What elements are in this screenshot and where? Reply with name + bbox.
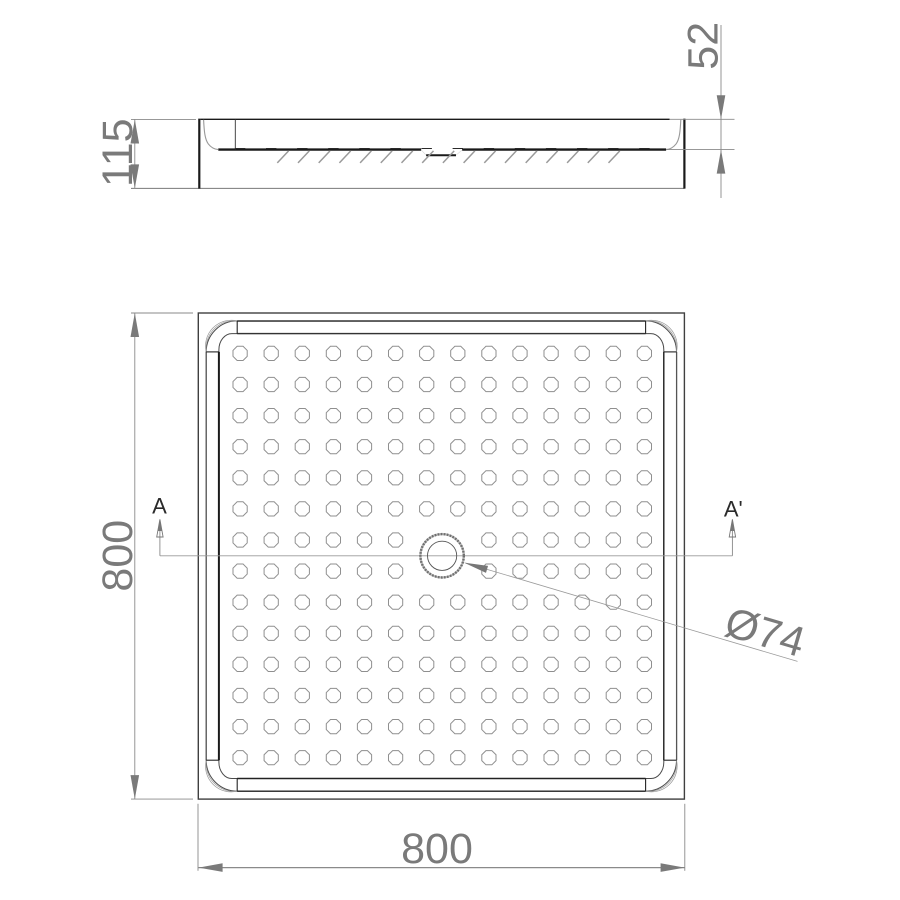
svg-text:800: 800	[401, 825, 473, 873]
svg-text:A': A'	[724, 497, 743, 522]
svg-text:115: 115	[94, 118, 142, 187]
svg-text:52: 52	[679, 22, 727, 70]
svg-text:800: 800	[94, 520, 142, 592]
svg-text:A: A	[152, 494, 167, 519]
